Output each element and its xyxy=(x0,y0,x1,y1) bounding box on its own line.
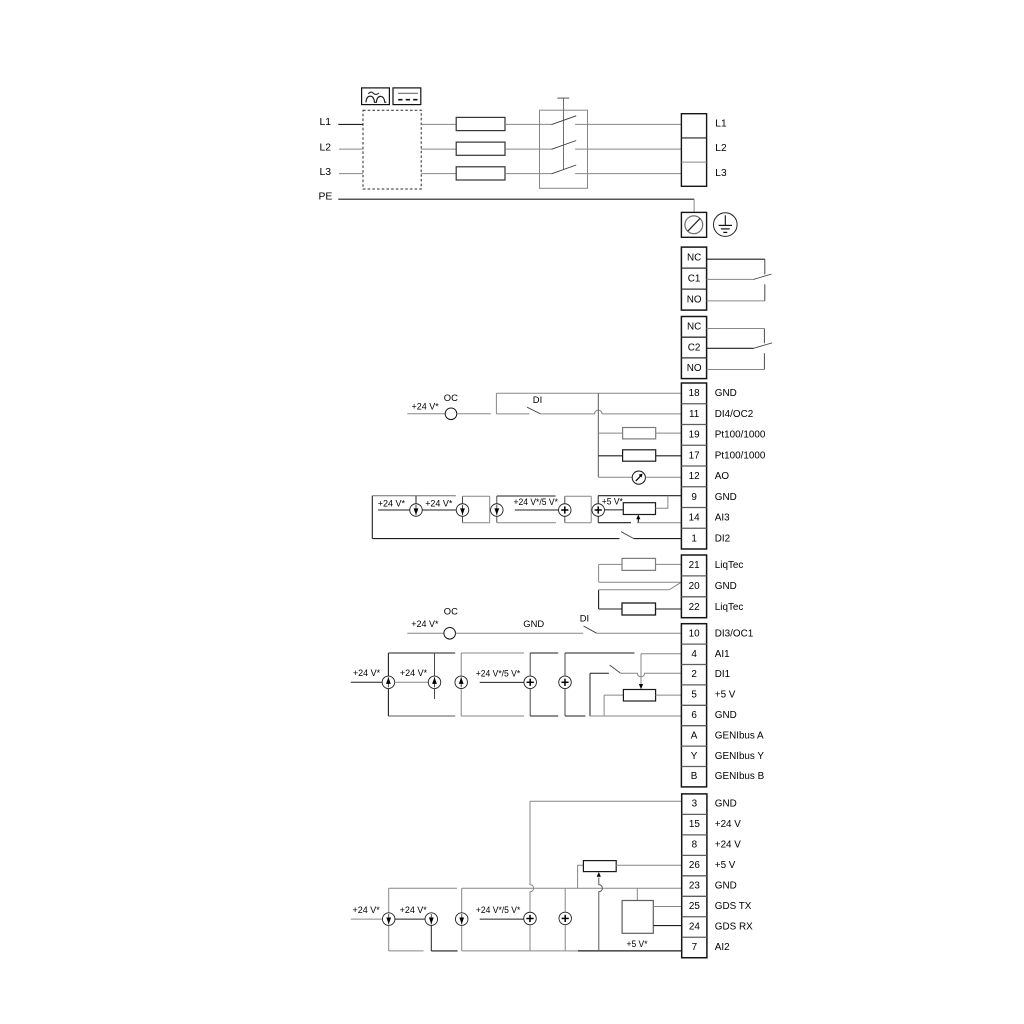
svg-text:Pt100/1000: Pt100/1000 xyxy=(715,450,766,461)
svg-text:DI3/OC1: DI3/OC1 xyxy=(715,628,754,639)
svg-text:15: 15 xyxy=(689,819,700,830)
svg-text:+24 V*/5 V*: +24 V*/5 V* xyxy=(476,668,521,678)
svg-text:+24 V*: +24 V* xyxy=(353,668,381,678)
svg-text:6: 6 xyxy=(691,710,697,721)
svg-text:11: 11 xyxy=(689,409,700,420)
svg-text:+24 V*: +24 V* xyxy=(425,498,453,508)
svg-text:Y: Y xyxy=(691,751,698,762)
svg-text:NC: NC xyxy=(687,252,701,263)
svg-text:21: 21 xyxy=(689,560,700,571)
svg-text:8: 8 xyxy=(692,839,698,850)
svg-text:GENIbus Y: GENIbus Y xyxy=(715,751,765,762)
svg-text:5: 5 xyxy=(691,690,697,701)
svg-text:+24 V*: +24 V* xyxy=(412,401,440,411)
svg-text:L3: L3 xyxy=(320,167,332,178)
svg-text:LiqTec: LiqTec xyxy=(715,560,744,571)
svg-text:AI3: AI3 xyxy=(715,513,730,524)
svg-text:GND: GND xyxy=(715,798,737,809)
svg-text:+24 V: +24 V xyxy=(715,839,741,850)
svg-text:3: 3 xyxy=(692,798,698,809)
svg-text:DI2: DI2 xyxy=(715,533,730,544)
svg-text:4: 4 xyxy=(691,649,697,660)
svg-text:GND: GND xyxy=(715,710,737,721)
svg-text:Pt100/1000: Pt100/1000 xyxy=(715,430,766,441)
svg-text:25: 25 xyxy=(689,901,700,912)
svg-text:+24 V*: +24 V* xyxy=(400,668,428,678)
svg-text:17: 17 xyxy=(689,450,700,461)
svg-text:NO: NO xyxy=(687,294,702,305)
svg-text:+5 V*: +5 V* xyxy=(602,497,623,507)
svg-text:NO: NO xyxy=(687,363,702,374)
svg-text:12: 12 xyxy=(689,471,700,482)
svg-text:+24 V*/5 V*: +24 V*/5 V* xyxy=(476,905,521,915)
svg-text:+5 V*: +5 V* xyxy=(627,939,648,949)
svg-text:AI1: AI1 xyxy=(715,649,730,660)
svg-text:+24 V: +24 V xyxy=(715,819,741,830)
svg-text:7: 7 xyxy=(692,942,698,953)
svg-text:C2: C2 xyxy=(688,342,701,353)
svg-text:B: B xyxy=(691,771,698,782)
svg-text:1: 1 xyxy=(691,533,697,544)
svg-text:GND: GND xyxy=(715,880,737,891)
svg-text:+5 V: +5 V xyxy=(715,860,736,871)
svg-text:LiqTec: LiqTec xyxy=(715,602,744,613)
svg-text:10: 10 xyxy=(689,628,700,639)
svg-text:OC: OC xyxy=(444,392,458,403)
svg-text:22: 22 xyxy=(689,602,700,613)
svg-text:GDS RX: GDS RX xyxy=(715,921,753,932)
svg-text:NC: NC xyxy=(687,322,701,333)
svg-text:L3: L3 xyxy=(715,168,727,179)
svg-text:2: 2 xyxy=(691,669,697,680)
svg-text:+5 V: +5 V xyxy=(715,690,736,701)
svg-text:+24 V*: +24 V* xyxy=(378,498,406,508)
svg-text:L2: L2 xyxy=(715,143,727,154)
svg-text:L2: L2 xyxy=(320,142,332,153)
svg-text:9: 9 xyxy=(691,492,697,503)
svg-text:L1: L1 xyxy=(320,117,332,128)
svg-text:+24 V*: +24 V* xyxy=(400,905,428,915)
svg-text:DI: DI xyxy=(533,394,542,405)
svg-text:20: 20 xyxy=(689,581,700,592)
svg-text:GND: GND xyxy=(715,388,737,399)
svg-text:L1: L1 xyxy=(715,119,727,130)
svg-text:GENIbus B: GENIbus B xyxy=(715,771,765,782)
svg-text:+24 V*: +24 V* xyxy=(411,619,439,629)
svg-text:GND: GND xyxy=(715,581,737,592)
svg-text:+24 V*/5 V*: +24 V*/5 V* xyxy=(514,497,559,507)
svg-text:DI4/OC2: DI4/OC2 xyxy=(715,409,753,420)
svg-text:+24 V*: +24 V* xyxy=(353,905,381,915)
svg-text:OC: OC xyxy=(444,605,458,616)
svg-text:A: A xyxy=(691,730,698,741)
svg-text:DI: DI xyxy=(580,612,589,623)
svg-text:GND: GND xyxy=(523,618,544,629)
svg-text:19: 19 xyxy=(689,430,700,441)
svg-text:AO: AO xyxy=(715,471,730,482)
svg-text:DI1: DI1 xyxy=(715,669,731,680)
svg-text:23: 23 xyxy=(689,880,700,891)
svg-text:C1: C1 xyxy=(688,273,701,284)
svg-text:GND: GND xyxy=(715,492,737,503)
svg-text:GENIbus A: GENIbus A xyxy=(715,730,764,741)
svg-text:PE: PE xyxy=(319,192,333,203)
svg-text:18: 18 xyxy=(689,388,700,399)
svg-text:14: 14 xyxy=(689,513,700,524)
svg-text:AI2: AI2 xyxy=(715,942,730,953)
svg-text:GDS TX: GDS TX xyxy=(715,901,752,912)
svg-text:26: 26 xyxy=(689,860,700,871)
svg-text:24: 24 xyxy=(689,921,700,932)
